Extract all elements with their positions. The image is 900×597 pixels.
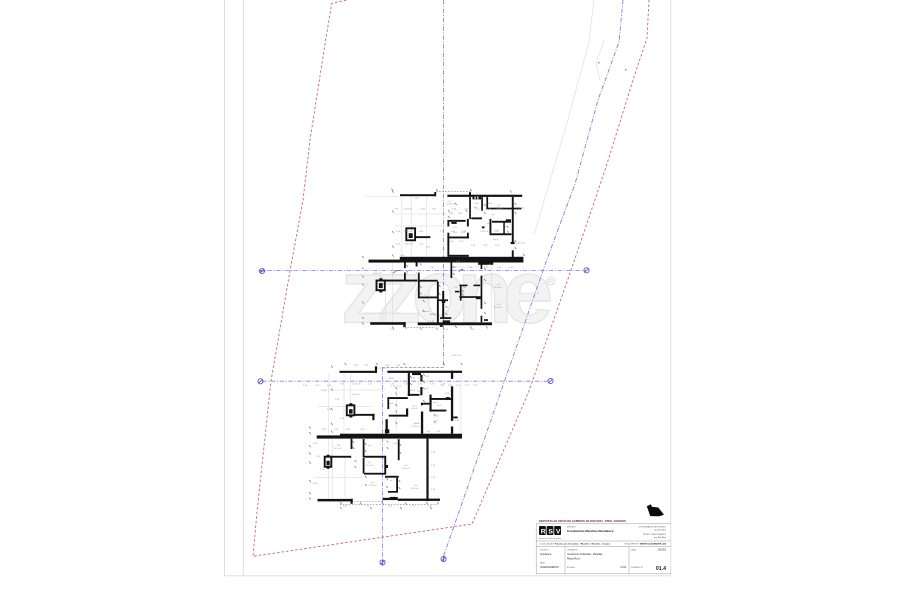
svg-text:SALA: SALA xyxy=(414,422,420,425)
svg-text:2.15: 2.15 xyxy=(456,385,461,387)
svg-text:2.15 1.10: 2.15 1.10 xyxy=(516,208,526,210)
svg-text:REQUERENTE: BRUNO ALEXANDRE LD: REQUERENTE: BRUNO ALEXANDRE LDA xyxy=(625,543,667,546)
svg-text:0.90: 0.90 xyxy=(327,409,332,411)
svg-text:1.45: 1.45 xyxy=(313,443,318,445)
svg-text:2.60: 2.60 xyxy=(313,483,318,485)
svg-text:Q.1: Q.1 xyxy=(368,462,372,464)
svg-text:1.10 0.35: 1.10 0.35 xyxy=(404,231,414,233)
svg-text:hall: hall xyxy=(368,445,372,447)
svg-text:14.4 m2: 14.4 m2 xyxy=(352,394,360,396)
svg-text:2.45: 2.45 xyxy=(393,443,398,445)
svg-text:12.4 m2: 12.4 m2 xyxy=(494,287,502,289)
svg-text:2.9 m2: 2.9 m2 xyxy=(424,296,431,298)
svg-text:1.30: 1.30 xyxy=(418,384,423,386)
svg-text:2.60: 2.60 xyxy=(385,365,390,367)
svg-text:ARR.: ARR. xyxy=(389,377,394,380)
svg-text:1.45: 1.45 xyxy=(458,213,463,215)
svg-text:2.15: 2.15 xyxy=(368,384,373,386)
svg-text:wc: wc xyxy=(505,226,508,228)
svg-text:1.45: 1.45 xyxy=(431,452,436,454)
svg-text:1.30 0.45: 1.30 0.45 xyxy=(352,384,362,386)
svg-text:1.35 0.45: 1.35 0.45 xyxy=(480,231,490,233)
svg-text:2.15: 2.15 xyxy=(428,506,433,508)
svg-text:Condomínio Unifamiliar - Mor: Condomínio Unifamiliar - Moradias xyxy=(567,553,603,556)
svg-text:1.30: 1.30 xyxy=(425,376,430,378)
svg-text:10.4 m2: 10.4 m2 xyxy=(402,468,410,470)
svg-text:4.2 m2: 4.2 m2 xyxy=(411,408,418,410)
svg-text:0.60: 0.60 xyxy=(488,203,493,205)
svg-text:11.6 m2: 11.6 m2 xyxy=(366,465,374,467)
svg-text:hall: hall xyxy=(474,207,478,209)
svg-text:TÉCNICO RESPONSÁVEL: TÉCNICO RESPONSÁVEL xyxy=(643,533,666,536)
svg-text:2.15: 2.15 xyxy=(316,456,321,458)
svg-text:1.15: 1.15 xyxy=(435,421,440,423)
svg-text:ESCALA: ESCALA xyxy=(567,566,575,569)
svg-text:DATA: DATA xyxy=(631,549,636,552)
svg-text:1.95: 1.95 xyxy=(365,506,370,508)
svg-text:2.15: 2.15 xyxy=(431,465,436,467)
svg-text:2.35: 2.35 xyxy=(394,208,399,210)
svg-text:1.10 0.90: 1.10 0.90 xyxy=(403,208,413,210)
svg-text:wc: wc xyxy=(487,223,490,225)
svg-text:1.45: 1.45 xyxy=(464,208,469,210)
svg-text:2.15: 2.15 xyxy=(465,385,470,387)
svg-text:S.8: S.8 xyxy=(337,445,341,447)
svg-text:S.Q: S.Q xyxy=(414,485,418,487)
svg-text:2.30: 2.30 xyxy=(360,429,365,431)
svg-text:AREA: AREA xyxy=(430,313,436,316)
svg-text:PROJETO: PROJETO xyxy=(540,550,549,552)
svg-text:arq. Rita Reis: arq. Rita Reis xyxy=(654,529,666,532)
svg-text:hall: hall xyxy=(390,403,394,405)
svg-text:1.10: 1.10 xyxy=(320,469,325,471)
svg-text:3.05: 3.05 xyxy=(421,208,426,210)
svg-text:16.2 m2: 16.2 m2 xyxy=(411,488,419,490)
svg-text:1.10: 1.10 xyxy=(364,365,369,367)
svg-text:0.60: 0.60 xyxy=(435,416,440,418)
svg-text:DESENHOS: DESENHOS xyxy=(567,550,578,552)
svg-text:1.10: 1.10 xyxy=(431,477,436,479)
svg-text:V: V xyxy=(556,528,561,535)
svg-text:0.80: 0.80 xyxy=(419,231,424,233)
svg-text:1.10: 1.10 xyxy=(495,230,500,232)
svg-text:2.50: 2.50 xyxy=(398,386,403,388)
svg-text:1.95: 1.95 xyxy=(430,384,435,386)
svg-text:S.Q: S.Q xyxy=(453,227,457,229)
svg-text:1.15: 1.15 xyxy=(391,386,396,388)
svg-text:1:100: 1:100 xyxy=(620,567,626,569)
svg-text:14.6 m2: 14.6 m2 xyxy=(422,311,430,313)
svg-text:Arquitetura: Arquitetura xyxy=(540,553,552,556)
svg-text:wc: wc xyxy=(390,480,393,482)
svg-text:1.05 0.90: 1.05 0.90 xyxy=(516,243,526,245)
svg-text:LOCALIZAÇÃO: Praceta Luís de C: LOCALIZAÇÃO: Praceta Luís de Camões, “Mu… xyxy=(539,543,611,546)
svg-text:FASE: FASE xyxy=(540,562,546,565)
svg-text:wc.3: wc.3 xyxy=(433,402,438,404)
svg-text:2.05: 2.05 xyxy=(303,385,308,387)
svg-text:11.8 m2: 11.8 m2 xyxy=(494,307,502,309)
svg-text:1.45 0.95: 1.45 0.95 xyxy=(373,273,383,275)
svg-text:12.8 m2: 12.8 m2 xyxy=(369,485,377,487)
svg-text:1.10: 1.10 xyxy=(473,385,478,387)
svg-text:Arquitetura Associados: Arquitetura Associados xyxy=(539,537,562,540)
svg-text:Condomínio Murches Residence: Condomínio Murches Residence xyxy=(567,529,614,533)
svg-text:2.05: 2.05 xyxy=(322,429,327,431)
svg-text:2.05: 2.05 xyxy=(396,231,401,233)
svg-text:2.05: 2.05 xyxy=(425,388,430,390)
svg-text:2.30: 2.30 xyxy=(426,431,431,433)
svg-text:11.60 m2: 11.60 m2 xyxy=(496,208,505,210)
svg-text:1.50: 1.50 xyxy=(414,198,419,200)
svg-text:COORDENADOR DE PROJETO: COORDENADOR DE PROJETO xyxy=(638,525,666,528)
svg-text:1.95: 1.95 xyxy=(440,231,445,233)
svg-text:2021/02: 2021/02 xyxy=(658,550,667,552)
svg-text:2.35: 2.35 xyxy=(343,506,348,508)
svg-text:arq. Rita Reis: arq. Rita Reis xyxy=(654,536,666,539)
svg-text:2.80: 2.80 xyxy=(449,213,454,215)
svg-text:2.60: 2.60 xyxy=(388,506,393,508)
svg-text:1.10: 1.10 xyxy=(315,385,320,387)
svg-text:01.4: 01.4 xyxy=(656,566,666,572)
svg-text:DESENHO Nº: DESENHO Nº xyxy=(631,566,643,569)
svg-text:LICENCIAMENTO: LICENCIAMENTO xyxy=(540,566,559,569)
svg-text:RESPOSTA AO OFÍCIO DO GABINETE: RESPOSTA AO OFÍCIO DO GABINETE DE 29/07/… xyxy=(539,518,626,523)
svg-text:S: S xyxy=(548,528,553,535)
svg-text:R: R xyxy=(541,528,546,535)
svg-text:22.4 m2: 22.4 m2 xyxy=(412,426,420,428)
svg-text:14.2 m2: 14.2 m2 xyxy=(334,448,342,450)
svg-text:R: R xyxy=(549,279,554,286)
svg-text:0.90: 0.90 xyxy=(411,378,416,380)
svg-text:hall.2: hall.2 xyxy=(493,239,499,241)
svg-text:1.60 0.90: 1.60 0.90 xyxy=(404,244,414,246)
svg-text:3.05: 3.05 xyxy=(453,232,458,234)
svg-text:1.45: 1.45 xyxy=(396,365,401,367)
svg-text:12.30 m2: 12.30 m2 xyxy=(447,204,457,206)
svg-text:2.30: 2.30 xyxy=(431,489,436,491)
svg-text:1.30: 1.30 xyxy=(411,506,416,508)
svg-text:1.10: 1.10 xyxy=(334,429,339,431)
svg-text:hall: hall xyxy=(488,264,492,266)
svg-text:2.50: 2.50 xyxy=(335,399,340,401)
svg-text:Q.3: Q.3 xyxy=(404,465,408,467)
svg-text:WC: WC xyxy=(463,287,467,289)
svg-text:1.15: 1.15 xyxy=(322,390,327,392)
svg-text:1.20: 1.20 xyxy=(474,203,479,205)
svg-text:0.45: 0.45 xyxy=(327,385,332,387)
svg-text:wc.3: wc.3 xyxy=(437,405,442,407)
svg-text:0.95: 0.95 xyxy=(432,208,437,210)
svg-text:2.80: 2.80 xyxy=(452,208,457,210)
svg-text:0.60: 0.60 xyxy=(455,420,460,422)
svg-text:2.35: 2.35 xyxy=(354,365,359,367)
svg-text:hall.2: hall.2 xyxy=(410,390,416,392)
svg-text:Q.2: Q.2 xyxy=(371,482,375,484)
svg-text:0.85: 0.85 xyxy=(346,429,351,431)
svg-text:1.30 0.45: 1.30 0.45 xyxy=(452,355,462,357)
svg-text:0.99: 0.99 xyxy=(445,393,450,395)
svg-text:1.30: 1.30 xyxy=(436,431,441,433)
svg-text:corr.: corr. xyxy=(491,213,495,216)
svg-text:Planta Piso 1: Planta Piso 1 xyxy=(567,557,581,560)
